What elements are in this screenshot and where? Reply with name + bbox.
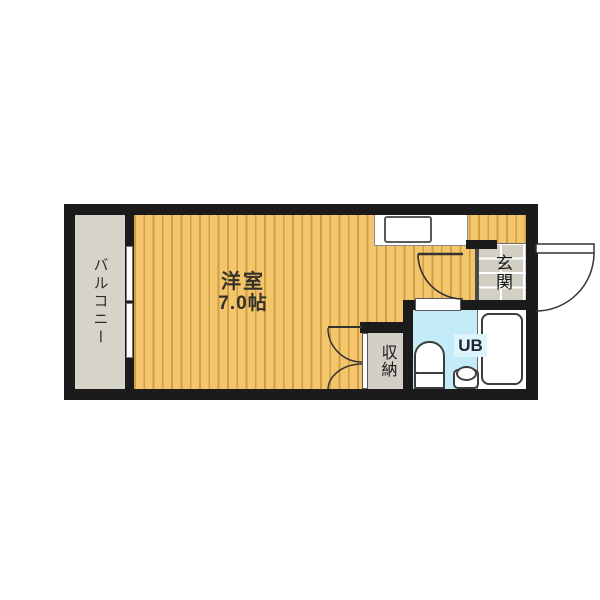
- outer-wall-left: [64, 204, 75, 400]
- entrance-tile-area: 玄関: [477, 243, 526, 301]
- bath-label: UB: [454, 334, 487, 357]
- bath-door: [415, 298, 461, 311]
- balcony-label: バルコニー: [90, 257, 111, 347]
- closet-wall-top: [360, 322, 412, 333]
- closet-area: 収納: [368, 333, 405, 389]
- kitchen-sink: [384, 216, 432, 243]
- outer-wall-top: [64, 204, 538, 215]
- room-label: 洋室: [190, 271, 296, 293]
- balcony-wall: [125, 214, 134, 389]
- wash-basin-bowl: [456, 366, 477, 381]
- toilet-icon: [414, 341, 445, 374]
- entrance-step-edge: [475, 249, 477, 301]
- entrance-door-leaf: [536, 244, 594, 253]
- toilet-tank: [414, 372, 445, 389]
- room-size-label: 7.0帖: [190, 293, 296, 314]
- closet-label: 収納: [375, 344, 399, 378]
- bath-wall-left: [403, 300, 413, 389]
- sliding-window-pane-top: [126, 246, 133, 301]
- entrance-label: 玄関: [490, 254, 515, 292]
- outer-wall-bottom: [64, 389, 538, 400]
- balcony-area: バルコニー: [75, 214, 125, 389]
- entrance-wall-stub: [466, 240, 497, 249]
- room-label-box: 洋室 7.0帖: [190, 271, 296, 323]
- bathtub: [481, 313, 523, 385]
- entrance-door-swing: [536, 253, 594, 311]
- sliding-window-pane-bottom: [126, 303, 133, 358]
- floor-plan: バルコニー 玄関 収納 UB 洋室 7.0帖: [0, 0, 600, 600]
